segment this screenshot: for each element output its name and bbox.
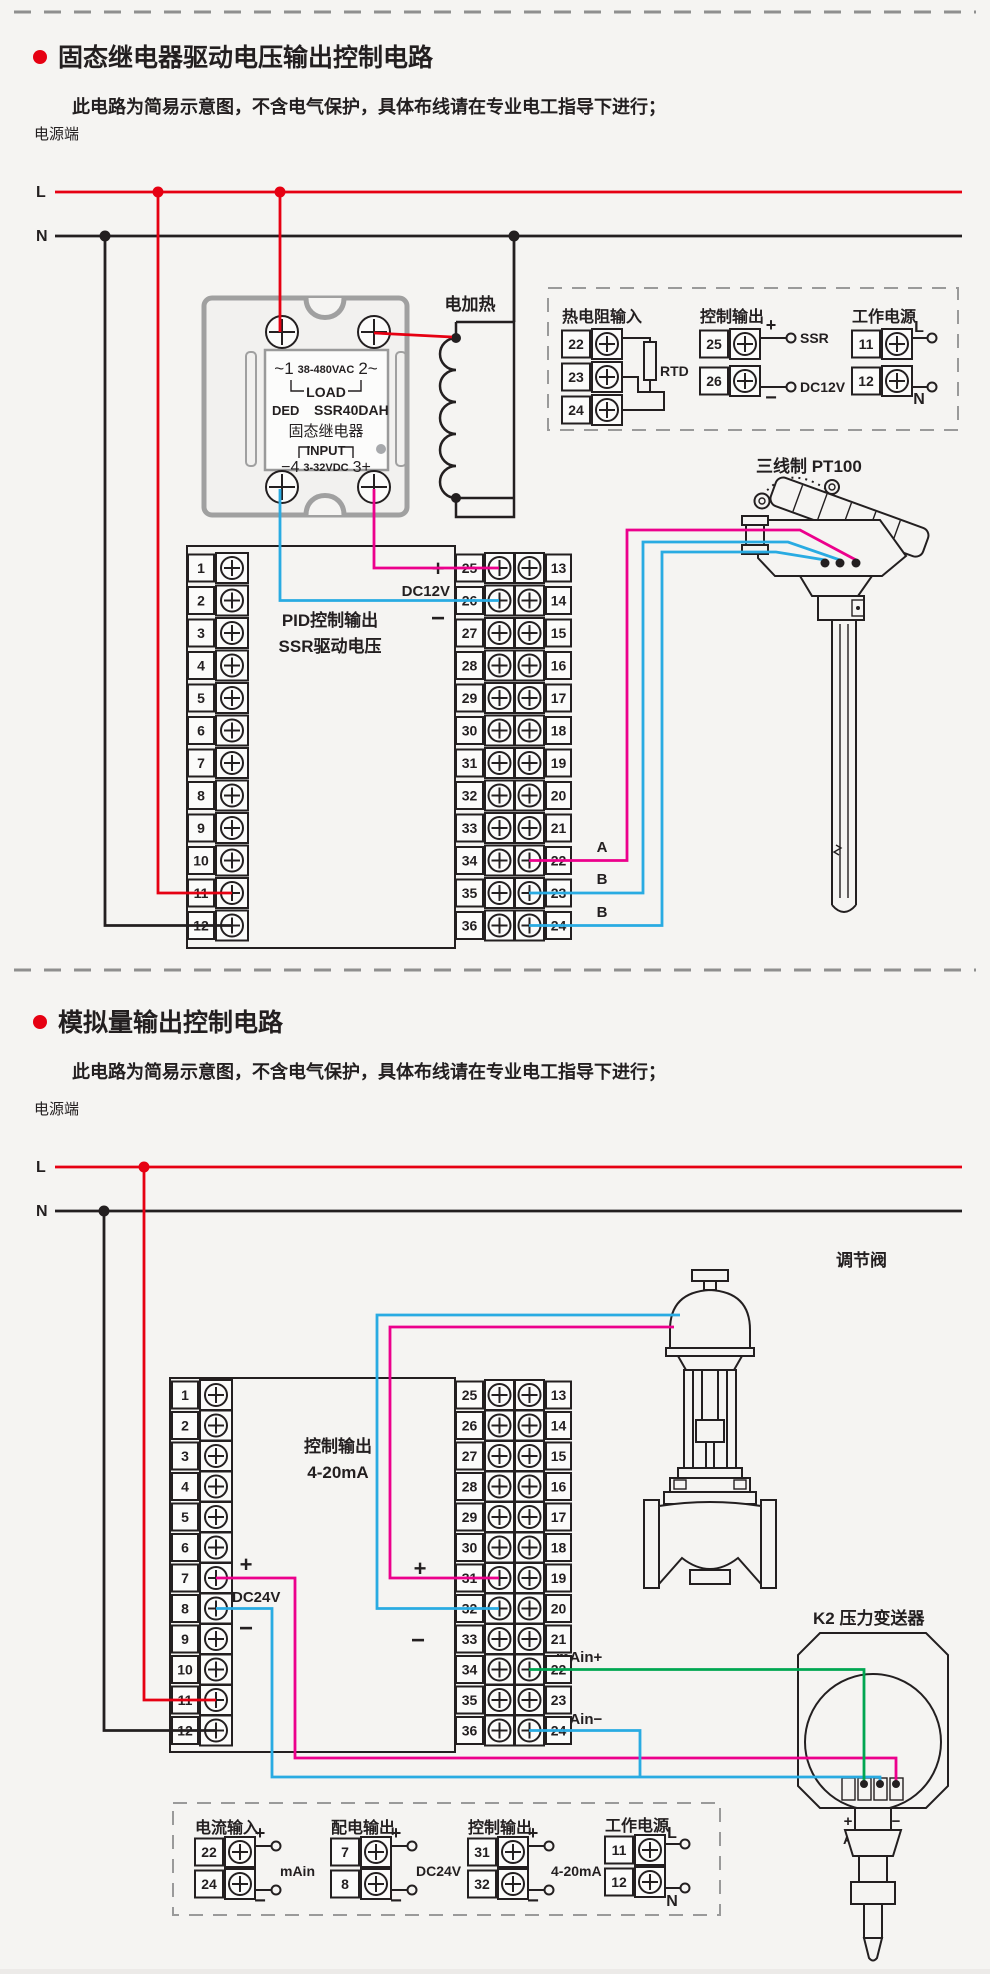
terminal-plus: + [844, 1813, 853, 1830]
terminal-number: 28 [462, 658, 478, 674]
terminal-number: 6 [197, 723, 205, 739]
terminal-number: 13 [551, 560, 567, 576]
legend-out-terminals: 2526 [700, 329, 760, 396]
junction-dot [99, 1206, 110, 1217]
terminal-number: 10 [193, 853, 209, 869]
terminal-number: 9 [197, 820, 205, 836]
valve-knob [692, 1270, 728, 1281]
controller-2: 控制输出 4-20mA + DC24V − + − mAin+ mAin− 12… [170, 1378, 603, 1752]
line-l-label: L [36, 1159, 46, 1176]
terminal-number: 22 [568, 336, 584, 352]
legend-sup-label: DC24V [416, 1863, 462, 1879]
legend-rtd-terminals: 222324 [562, 329, 622, 425]
terminal-number: 16 [551, 1479, 567, 1495]
pt100-wire-b1 [529, 542, 840, 893]
sensor-terminal-dot [821, 559, 830, 568]
sup-voltage-label: DC24V [232, 1589, 280, 1606]
terminal-number: 34 [462, 853, 478, 869]
legend-pwr-terminals: 1112 [852, 329, 912, 396]
legend-pwr-wires [912, 338, 928, 387]
terminal-number: 10 [177, 1662, 193, 1678]
legend-out-dc12v: DC12V [800, 379, 846, 395]
terminal-legend-2: 电流输入 2224 + − mAin 配电输出 78 + − DC24V 控制输… [173, 1803, 720, 1915]
open-terminal-icon [272, 1886, 281, 1895]
terminal-number: 8 [197, 788, 205, 804]
section1-note: 此电路为简易示意图，不含电气保护，具体布线请在专业电工指导下进行； [72, 96, 666, 117]
section2-power-rails: 电源端 L N [34, 1101, 962, 1220]
ssr-indicator-dot [376, 444, 386, 454]
wire-a-label: A [597, 839, 608, 856]
pressure-transmitter: K2 压力变送器 + − + − A B [798, 1608, 948, 1961]
terminal-number: 29 [462, 1509, 478, 1525]
transmitter-hex [851, 1882, 895, 1904]
legend-rtd-title: 热电阻输入 [562, 307, 642, 326]
terminal-number: 20 [551, 1601, 567, 1617]
terminal-number: 7 [341, 1844, 349, 1860]
terminal-number: 32 [462, 788, 478, 804]
terminal-number: 17 [551, 1509, 567, 1525]
power-label: 电源端 [34, 1101, 79, 1118]
terminal-number: 19 [551, 1570, 567, 1586]
section1-title: 固态继电器驱动电压输出控制电路 [58, 43, 434, 72]
valve-coupling [696, 1420, 724, 1442]
terminal-number: 17 [551, 690, 567, 706]
sensor-terminal-dot [852, 559, 861, 568]
terminal-minus: − [892, 1813, 901, 1830]
controller2-mid2: 4-20mA [307, 1463, 368, 1482]
manual-page: 固态继电器驱动电压输出控制电路 此电路为简易示意图，不含电气保护，具体布线请在专… [0, 0, 990, 1969]
legend-out-label: 4-20mA [551, 1863, 602, 1879]
pt100-wire-b2 [529, 552, 825, 926]
ssr-load-label: LOAD [306, 384, 346, 400]
terminal-number: 8 [341, 1876, 349, 1892]
terminal-number: 7 [181, 1570, 189, 1586]
heater-label: 电加热 [445, 294, 496, 314]
terminal-number: 27 [462, 625, 478, 641]
terminal-number: 5 [197, 690, 205, 706]
terminal-number: 15 [551, 1448, 567, 1464]
section1-power-rails: 电源端 L N [34, 126, 962, 245]
terminal-number: 24 [201, 1876, 217, 1892]
terminal-number: 18 [551, 1540, 567, 1556]
transmitter-label: K2 压力变送器 [813, 1608, 925, 1628]
controller1-right-terminals: 2513261427152816291730183119322033213422… [456, 553, 571, 941]
terminal-number: 13 [551, 1387, 567, 1403]
terminal-legend-1: 热电阻输入 222324 RTD 控制输出 2526 + − SSR DC12V… [548, 288, 958, 430]
open-terminal-icon [272, 1842, 281, 1851]
open-terminal-icon [545, 1886, 554, 1895]
controller1-left-terminals: 123456789101112 [188, 553, 248, 941]
terminal-number: 2 [197, 593, 205, 609]
terminal-number: 29 [462, 690, 478, 706]
terminal-number: 3 [181, 1448, 189, 1464]
legend-plus: + [255, 1823, 266, 1843]
terminal-number: 4 [197, 658, 205, 674]
terminal-number: 23 [551, 1692, 567, 1708]
wire-b2-label: B [597, 904, 608, 921]
ssr-dc-line: −43-32VDC3+ [281, 459, 371, 476]
terminal-number: 30 [462, 1540, 478, 1556]
terminal-number: 31 [462, 755, 478, 771]
legend-pwr-l: L [667, 1825, 677, 1842]
legend-cur-title: 电流输入 [195, 1818, 259, 1837]
legend-cur-terminals: 2224 [195, 1837, 255, 1899]
legend-minus: − [390, 1890, 402, 1912]
legend-pwr-n: N [913, 391, 925, 408]
transmitter-terminal [842, 1778, 855, 1800]
transmitter-tip [864, 1938, 882, 1961]
out-voltage-label: DC12V [402, 583, 450, 600]
terminal-number: 7 [197, 755, 205, 771]
legend-out-minus: − [765, 387, 777, 409]
terminal-number: 6 [181, 1540, 189, 1556]
sup-plus-label: + [240, 1552, 253, 1577]
terminal-number: 35 [462, 885, 478, 901]
solid-state-relay: ~138-480VAC2~ LOAD DED SSR40DAH 固态继电器 IN… [204, 298, 407, 515]
line-n-label: N [36, 1203, 48, 1220]
controller2-left-terminals: 123456789101112 [172, 1380, 232, 1746]
junction-dot [275, 187, 286, 198]
heater-box [456, 322, 514, 517]
terminal-number: 22 [201, 1844, 217, 1860]
terminal-number: 14 [551, 593, 567, 609]
terminal-number: 14 [551, 1418, 567, 1434]
sensor-terminal-dot [836, 559, 845, 568]
valve-pipe-flange [644, 1500, 659, 1588]
rtd-resistor [644, 342, 656, 380]
transmitter-terminal-dot [892, 1780, 900, 1788]
terminal-number: 8 [181, 1601, 189, 1617]
junction-dot [100, 231, 111, 242]
terminal-number: 33 [462, 820, 478, 836]
legend-out-terminals: 3132 [468, 1837, 528, 1899]
terminal-number: 34 [462, 1662, 478, 1678]
terminal-number: 11 [859, 336, 874, 352]
terminal-number: 3 [197, 625, 205, 641]
controller2-right-terminals: 2513261427152816291730183119322033213422… [456, 1380, 571, 1746]
controller-1: PID控制输出 SSR驱动电压 + DC12V − A B B 12345678… [187, 546, 608, 948]
control-valve: 调节阀 [644, 1250, 887, 1588]
ssr-top-notch [306, 298, 344, 318]
terminal-number: 12 [611, 1874, 627, 1890]
ssr-model: SSR40DAH [314, 402, 389, 418]
bullet-icon [33, 1015, 47, 1029]
terminal-number: 23 [568, 369, 584, 385]
terminal-number: 32 [474, 1876, 490, 1892]
section2-title: 模拟量输出控制电路 [58, 1008, 284, 1037]
sensor-gland [742, 516, 768, 525]
legend-plus: + [528, 1823, 539, 1843]
line-l-label: L [36, 184, 46, 201]
open-terminal-icon [787, 383, 796, 392]
legend-sup-title: 配电输出 [331, 1818, 395, 1837]
terminal-number: 2 [181, 1418, 189, 1434]
out-minus-label: − [431, 605, 445, 632]
terminal-number: 21 [551, 1631, 567, 1647]
valve-foot [690, 1570, 730, 1584]
open-terminal-icon [787, 334, 796, 343]
legend-minus: − [254, 1890, 266, 1912]
heater-coil [440, 338, 456, 498]
valve-actuator-dome [670, 1290, 750, 1348]
open-terminal-icon [408, 1886, 417, 1895]
terminal-number: 31 [474, 1844, 490, 1860]
controller2-mid1: 控制输出 [304, 1436, 372, 1456]
open-terminal-icon [408, 1842, 417, 1851]
ssr-brand: DED [272, 403, 299, 418]
terminal-number: 12 [858, 373, 874, 389]
legend-out-wires [760, 338, 787, 387]
legend-pwr-terminals: 1112 [605, 1835, 665, 1897]
open-terminal-icon [545, 1842, 554, 1851]
terminal-number: 16 [551, 658, 567, 674]
terminal-number: 26 [462, 1418, 478, 1434]
terminal-number: 30 [462, 723, 478, 739]
pt100-sensor: 三线制 PT100 [742, 456, 931, 912]
legend-plus: + [391, 1823, 402, 1843]
terminal-number: 26 [706, 373, 722, 389]
line-n-label: N [36, 228, 48, 245]
terminal-number: 15 [551, 625, 567, 641]
valve-stem [702, 1370, 718, 1420]
valve-yoke-column [727, 1370, 736, 1468]
junction-dot [139, 1162, 150, 1173]
terminal-number: 36 [462, 1723, 478, 1739]
legend-out-title: 控制输出 [700, 307, 764, 326]
valve-pipe-flange [761, 1500, 776, 1588]
sensor-label: 三线制 PT100 [756, 456, 862, 476]
terminal-number: 18 [551, 723, 567, 739]
open-terminal-icon [928, 334, 937, 343]
terminal-number: 4 [181, 1479, 189, 1495]
terminal-number: 21 [551, 820, 567, 836]
terminal-number: 33 [462, 1631, 478, 1647]
out-minus-label: − [411, 1627, 425, 1654]
terminal-number: 1 [181, 1387, 189, 1403]
legend-pwr-l: L [914, 319, 924, 336]
power-label: 电源端 [34, 126, 79, 143]
transmitter-terminal-dot [860, 1780, 868, 1788]
terminal-number: 35 [462, 1692, 478, 1708]
transmitter-cover [805, 1674, 941, 1810]
rtd-label: RTD [660, 363, 689, 379]
sensor-probe-tip [832, 905, 856, 912]
terminal-number: 19 [551, 755, 567, 771]
legend-pwr-title: 工作电源 [852, 307, 916, 326]
terminal-number: 1 [197, 560, 205, 576]
wire-b1-label: B [597, 871, 608, 888]
sensor-neck [800, 576, 872, 596]
ssr-name: 固态继电器 [288, 423, 363, 440]
legend-out-plus: + [766, 315, 777, 335]
bullet-icon [33, 50, 47, 64]
controller1-mid2: SSR驱动电压 [279, 636, 382, 656]
legend-sup-terminals: 78 [331, 1837, 391, 1899]
junction-dot [509, 231, 520, 242]
terminal-number: 25 [706, 336, 722, 352]
junction-dot [153, 187, 164, 198]
controller1-mid1: PID控制输出 [282, 610, 378, 630]
ssr-bottom-notch [306, 496, 344, 516]
sensor-cap-bolt [825, 480, 839, 494]
open-terminal-icon [928, 383, 937, 392]
sensor-cap-plug [755, 494, 770, 509]
section2-heading: 模拟量输出控制电路 此电路为简易示意图，不含电气保护，具体布线请在专业电工指导下… [33, 1008, 666, 1082]
electric-heater: 电加热 [440, 294, 514, 517]
legend-pwr-n: N [666, 1893, 678, 1910]
terminal-number: 27 [462, 1448, 478, 1464]
legend-out-ssr: SSR [800, 330, 829, 346]
section1-heading: 固态继电器驱动电压输出控制电路 此电路为简易示意图，不含电气保护，具体布线请在专… [33, 43, 666, 117]
ssr-input-label: INPUT [307, 443, 346, 458]
legend-out-title: 控制输出 [468, 1818, 532, 1837]
wiring-diagram: 固态继电器驱动电压输出控制电路 此电路为简易示意图，不含电气保护，具体布线请在专… [0, 0, 990, 1969]
legend-pwr-title: 工作电源 [605, 1816, 669, 1835]
sup-minus-label: − [239, 1615, 253, 1642]
open-terminal-icon [681, 1884, 690, 1893]
terminal-number: 24 [568, 402, 584, 418]
transmitter-terminal-dot [876, 1780, 884, 1788]
terminal-number: 11 [612, 1842, 627, 1858]
transmitter-housing [798, 1633, 948, 1808]
terminal-number: 5 [181, 1509, 189, 1525]
open-terminal-icon [681, 1840, 690, 1849]
terminal-number: 36 [462, 918, 478, 934]
legend-cur-label: mAin [280, 1863, 315, 1879]
valve-yoke-column [684, 1370, 693, 1468]
legend-minus: − [527, 1890, 539, 1912]
section2-note: 此电路为简易示意图，不含电气保护，具体布线请在专业电工指导下进行； [72, 1061, 666, 1082]
terminal-number: 9 [181, 1631, 189, 1647]
terminal-number: 25 [462, 1387, 478, 1403]
sensor-probe [832, 620, 856, 905]
valve-label: 调节阀 [836, 1250, 887, 1270]
terminal-number: 28 [462, 1479, 478, 1495]
terminal-number: 20 [551, 788, 567, 804]
